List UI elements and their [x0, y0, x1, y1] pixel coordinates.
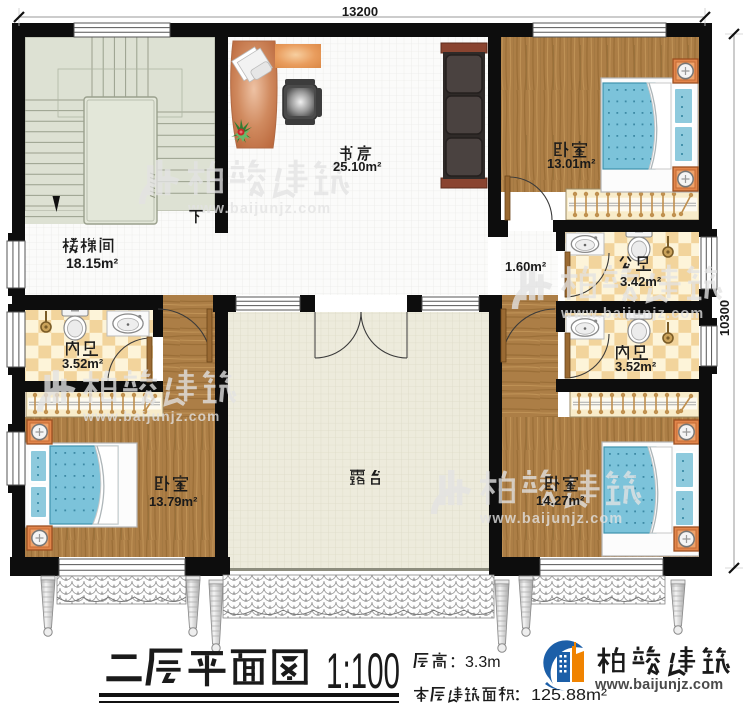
svg-text:13.79m²: 13.79m²: [149, 494, 198, 509]
svg-text:1.60m²: 1.60m²: [505, 259, 547, 274]
svg-text:14.27m²: 14.27m²: [536, 493, 585, 508]
svg-text:：3.3m: ：3.3m: [449, 654, 501, 671]
svg-text:13200: 13200: [342, 4, 378, 19]
svg-text:www.baijunjz.com: www.baijunjz.com: [187, 201, 331, 217]
svg-text:10300: 10300: [717, 300, 732, 336]
svg-text:25.10m²: 25.10m²: [333, 159, 382, 174]
svg-text:：125.88m²: ：125.88m²: [513, 687, 608, 704]
svg-text:www.baijunjz.com: www.baijunjz.com: [82, 409, 220, 424]
svg-text:www.baijunjz.com: www.baijunjz.com: [479, 511, 623, 527]
svg-text:18.15m²: 18.15m²: [66, 255, 118, 271]
svg-text:3.52m²: 3.52m²: [62, 356, 104, 371]
svg-text:3.52m²: 3.52m²: [615, 359, 657, 374]
svg-text:1:100: 1:100: [326, 643, 400, 699]
svg-text:3.42m²: 3.42m²: [620, 274, 662, 289]
svg-text:www.baijunjz.com: www.baijunjz.com: [594, 677, 723, 693]
svg-text:www.baijunjz.com: www.baijunjz.com: [560, 306, 704, 322]
svg-text:13.01m²: 13.01m²: [547, 156, 596, 171]
